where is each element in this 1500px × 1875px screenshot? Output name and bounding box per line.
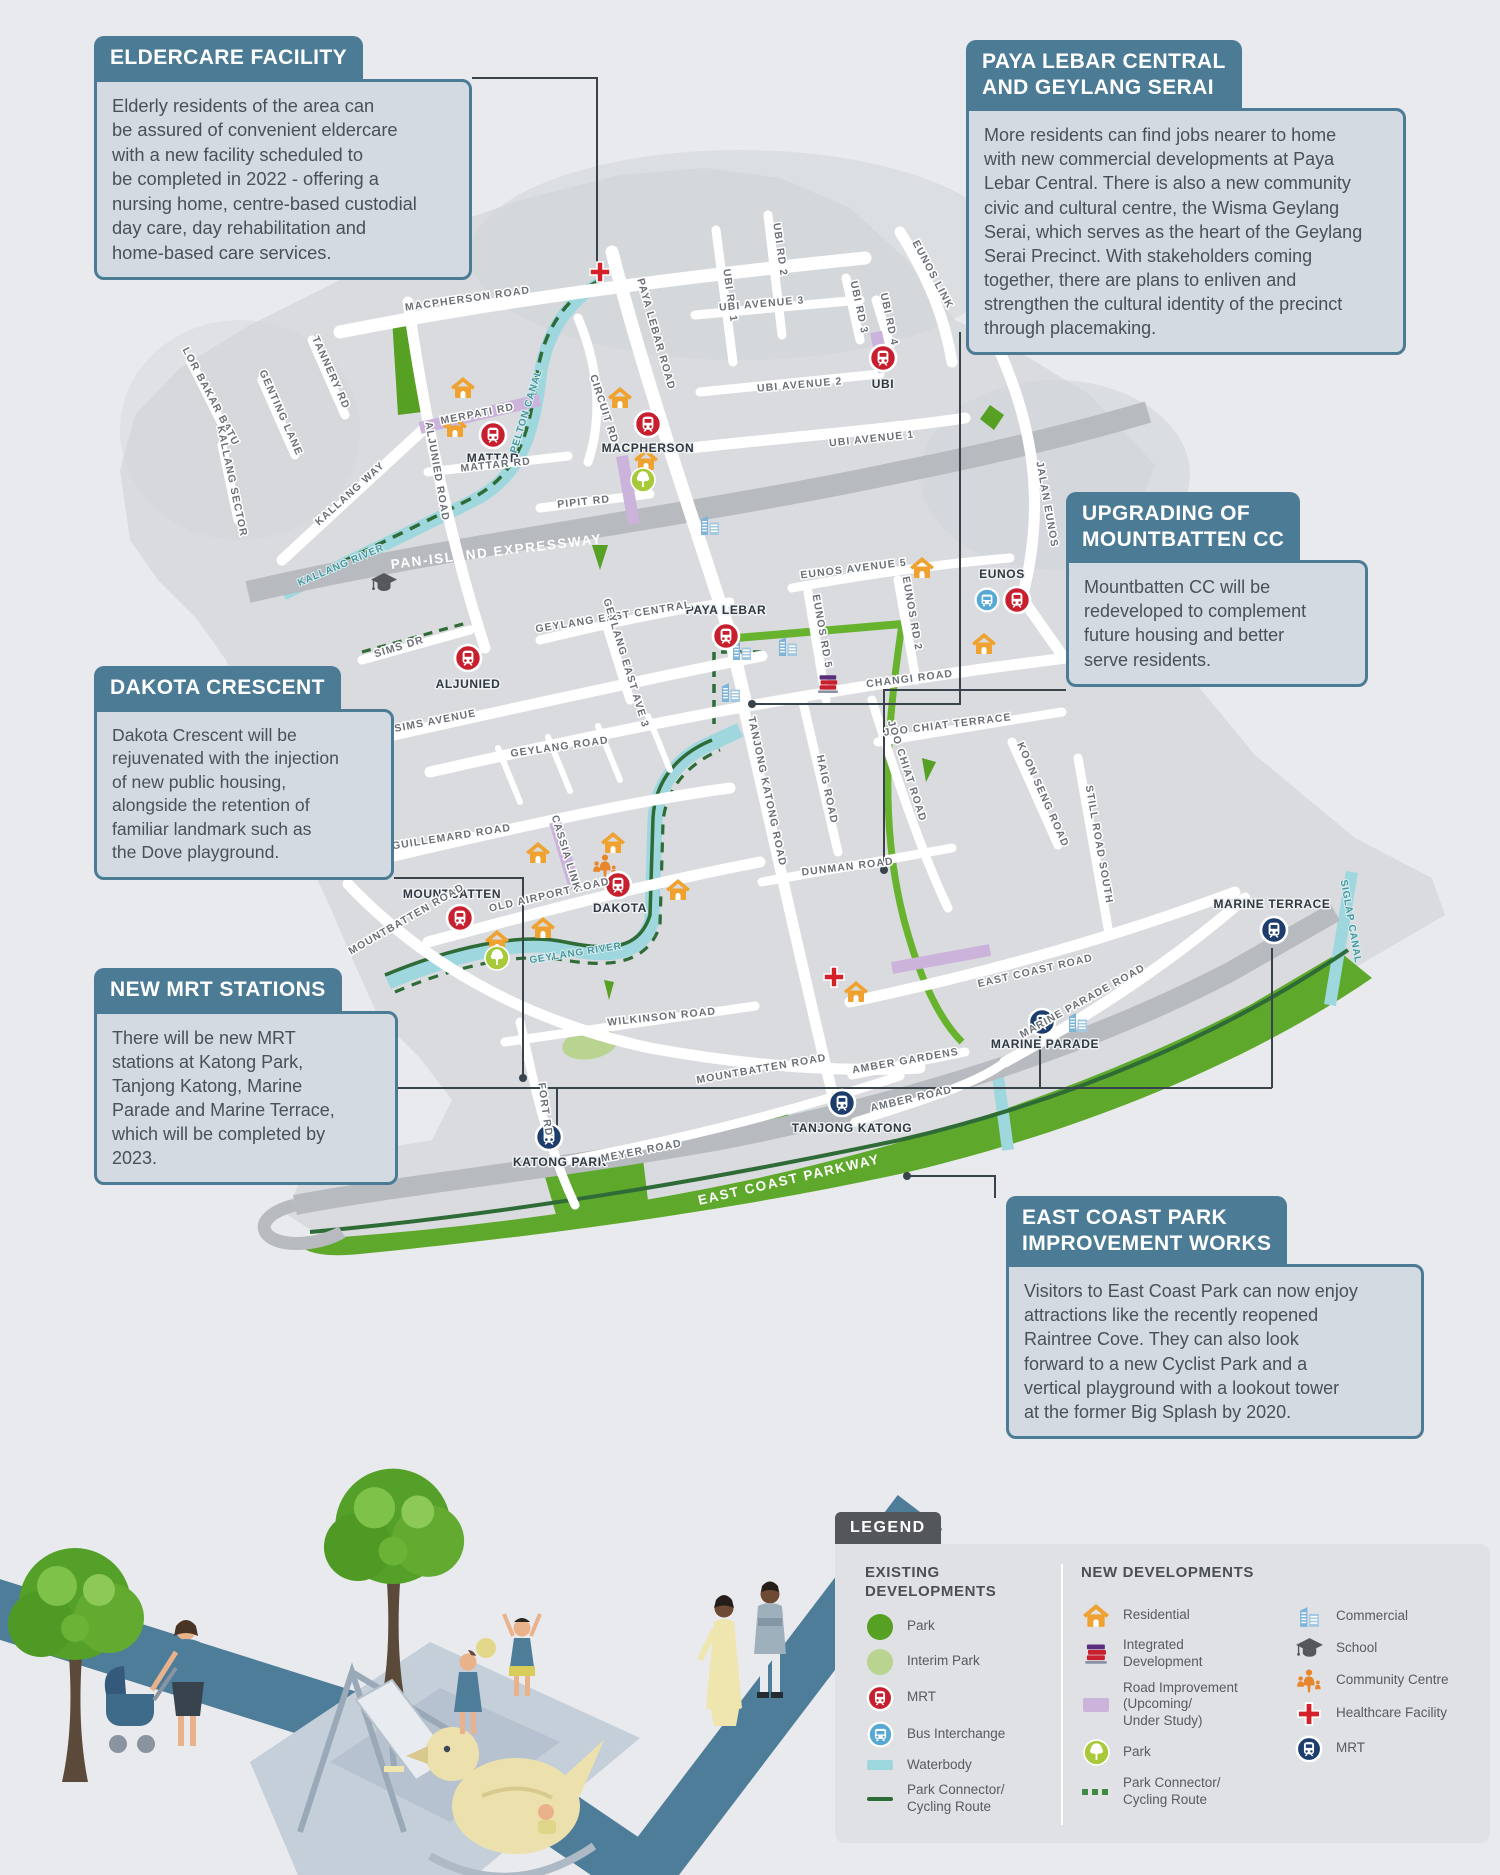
swing-seat <box>384 1766 404 1772</box>
integrated-development-icon <box>1083 1642 1109 1665</box>
legend-label: Bus Interchange <box>907 1726 1005 1743</box>
interim-park-icon <box>867 1649 893 1675</box>
legend-item-park-new: Park <box>1081 1739 1286 1766</box>
community-centre-icon <box>1296 1669 1322 1693</box>
legend-item-bus-interchange: Bus Interchange <box>865 1721 1055 1748</box>
residential-icon <box>1083 1604 1109 1628</box>
station-label: EUNOS <box>979 567 1025 581</box>
legend-new-column: NEW DEVELOPMENTS Residential Integrated … <box>1081 1564 1480 1825</box>
legend-heading: EXISTING DEVELOPMENTS <box>865 1564 1055 1602</box>
callout-title: EAST COAST PARK IMPROVEMENT WORKS <box>1006 1196 1287 1264</box>
legend-item-healthcare: Healthcare Facility <box>1294 1702 1480 1726</box>
legend-item-park: Park <box>865 1614 1055 1640</box>
legend: LEGEND EXISTING DEVELOPMENTS Park Interi… <box>835 1512 1490 1843</box>
legend-label: Park Connector/ Cycling Route <box>907 1782 1005 1816</box>
legend-label: MRT <box>907 1689 936 1706</box>
mrt-station-macpherson <box>635 411 661 437</box>
legend-item-waterbody: Waterbody <box>865 1757 1055 1774</box>
park-connector-dashed-icon <box>1082 1788 1110 1796</box>
legend-heading: NEW DEVELOPMENTS <box>1081 1564 1480 1583</box>
legend-label: MRT <box>1336 1740 1365 1757</box>
mrt-icon <box>866 1684 894 1712</box>
mrt-station-marine-terrace <box>1261 917 1287 943</box>
legend-label: Healthcare Facility <box>1336 1705 1447 1722</box>
callout-title: DAKOTA CRESCENT <box>94 666 341 709</box>
mrt-new-icon <box>1295 1735 1323 1763</box>
legend-label: Road Improvement (Upcoming/ Under Study) <box>1123 1680 1238 1731</box>
legend-panel: EXISTING DEVELOPMENTS Park Interim Park … <box>835 1544 1490 1843</box>
waterbody-icon <box>867 1760 893 1770</box>
new-park-icon <box>631 468 655 492</box>
road-improvement-icon <box>1083 1698 1109 1712</box>
legend-item-community-centre: Community Centre <box>1294 1669 1480 1693</box>
legend-item-residential: Residential <box>1081 1604 1286 1628</box>
new-park-icon <box>1083 1739 1110 1766</box>
mrt-station-eunos <box>1004 587 1030 613</box>
park-icon <box>867 1614 893 1640</box>
playground-illustration <box>0 1469 920 1875</box>
station-label: KATONG PARK <box>513 1155 607 1169</box>
legend-tab: LEGEND <box>835 1512 941 1544</box>
callout-east-coast-park: EAST COAST PARK IMPROVEMENT WORKS Visito… <box>1006 1196 1424 1439</box>
legend-label: Waterbody <box>907 1757 972 1774</box>
callout-mountbatten-cc: UPGRADING OF MOUNTBATTEN CC Mountbatten … <box>1066 492 1368 687</box>
callout-title: NEW MRT STATIONS <box>94 968 342 1011</box>
legend-item-mrt-new: MRT <box>1294 1735 1480 1763</box>
callout-eldercare: ELDERCARE FACILITY Elderly residents of … <box>94 36 472 280</box>
legend-item-park-connector: Park Connector/ Cycling Route <box>865 1782 1055 1816</box>
callout-title: PAYA LEBAR CENTRAL AND GEYLANG SERAI <box>966 40 1242 108</box>
callout-body: More residents can find jobs nearer to h… <box>966 108 1406 355</box>
callout-body: There will be new MRT stations at Katong… <box>94 1011 398 1186</box>
bus-interchange-icon <box>976 589 999 612</box>
mrt-station-mountbatten <box>447 905 473 931</box>
station-label: MARINE TERRACE <box>1213 897 1330 911</box>
legend-label: School <box>1336 1640 1377 1657</box>
station-label: TANJONG KATONG <box>792 1121 912 1135</box>
legend-label: Commercial <box>1336 1608 1408 1625</box>
legend-label: Park Connector/ Cycling Route <box>1123 1775 1221 1809</box>
station-label: ALJUNIED <box>436 677 501 691</box>
callout-body: Visitors to East Coast Park can now enjo… <box>1006 1264 1424 1439</box>
legend-item-park-connector-dashed: Park Connector/ Cycling Route <box>1081 1775 1286 1809</box>
legend-item-school: School <box>1294 1638 1480 1660</box>
legend-item-interim-park: Interim Park <box>865 1649 1055 1675</box>
station-label: UBI <box>872 377 894 391</box>
callout-body: Mountbatten CC will be redeveloped to co… <box>1066 560 1368 686</box>
callout-new-mrt: NEW MRT STATIONS There will be new MRT s… <box>94 968 398 1185</box>
callout-title: ELDERCARE FACILITY <box>94 36 363 79</box>
station-label: MARINE PARADE <box>991 1037 1099 1051</box>
legend-item-commercial: Commercial <box>1294 1604 1480 1629</box>
legend-divider <box>1061 1564 1063 1825</box>
legend-label: Interim Park <box>907 1653 980 1670</box>
legend-label: Park <box>907 1618 935 1635</box>
mrt-station-aljunied <box>455 645 481 671</box>
callout-body: Elderly residents of the area can be ass… <box>94 79 472 281</box>
station-label: PAYA LEBAR <box>686 603 766 617</box>
legend-label: Residential <box>1123 1607 1190 1624</box>
callout-title: UPGRADING OF MOUNTBATTEN CC <box>1066 492 1300 560</box>
legend-label: Community Centre <box>1336 1672 1449 1689</box>
legend-label: Integrated Development <box>1123 1637 1203 1671</box>
station-label: DAKOTA <box>593 901 647 915</box>
legend-label: Park <box>1123 1744 1151 1761</box>
callout-dakota-crescent: DAKOTA CRESCENT Dakota Crescent will be … <box>94 666 394 880</box>
legend-existing-column: EXISTING DEVELOPMENTS Park Interim Park … <box>865 1564 1055 1825</box>
mrt-station-paya-lebar <box>713 623 739 649</box>
callout-paya-lebar: PAYA LEBAR CENTRAL AND GEYLANG SERAI Mor… <box>966 40 1406 355</box>
station-label: MACPHERSON <box>602 441 695 455</box>
legend-item-integrated-development: Integrated Development <box>1081 1637 1286 1671</box>
school-icon <box>1296 1638 1323 1660</box>
mrt-station-tanjong-katong <box>829 1090 855 1116</box>
healthcare-icon <box>1297 1702 1321 1726</box>
mrt-station-ubi <box>870 345 896 371</box>
legend-item-road-improvement: Road Improvement (Upcoming/ Under Study) <box>1081 1680 1286 1731</box>
commercial-icon <box>1297 1604 1322 1629</box>
callout-body: Dakota Crescent will be rejuvenated with… <box>94 709 394 880</box>
new-park-icon <box>485 946 509 970</box>
infographic-page: { "title": "Kallang / Geylang / Marine P… <box>0 0 1500 1875</box>
legend-item-mrt: MRT <box>865 1684 1055 1712</box>
mrt-station-mattar <box>480 422 506 448</box>
bus-interchange-icon <box>867 1721 894 1748</box>
park-connector-icon <box>867 1797 893 1801</box>
